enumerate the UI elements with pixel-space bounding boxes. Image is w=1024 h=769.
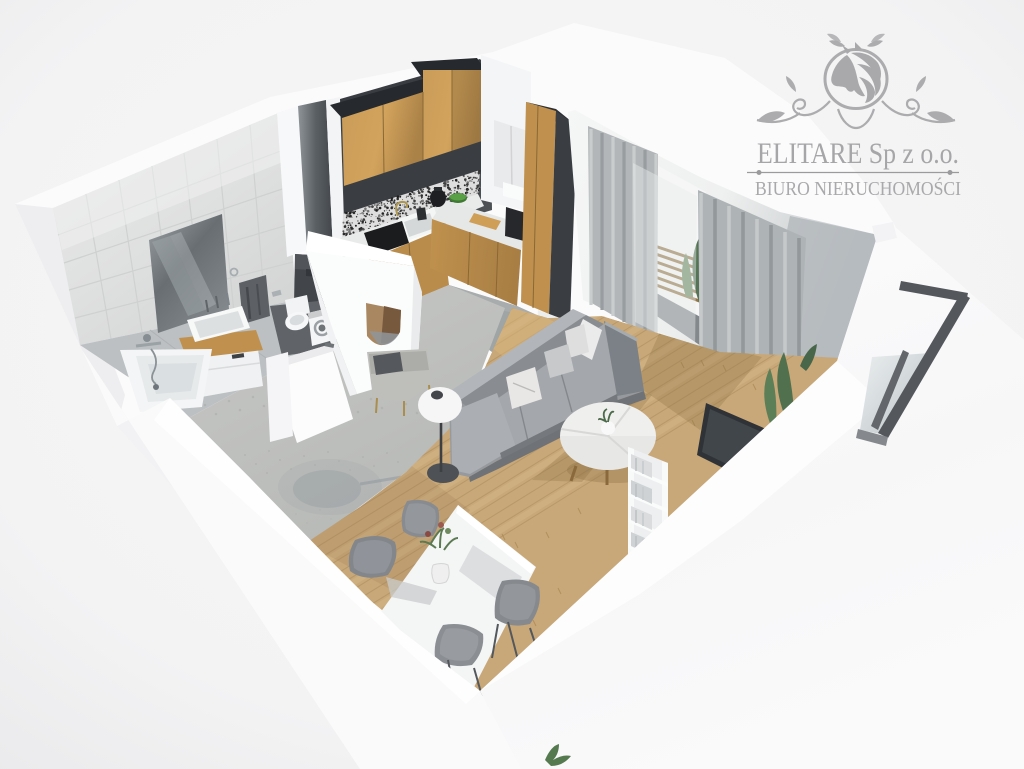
svg-text:ELITARE Sp z o.o.: ELITARE Sp z o.o. <box>757 137 959 170</box>
svg-text:BIURO NIERUCHOMOŚCI: BIURO NIERUCHOMOŚCI <box>755 178 961 200</box>
